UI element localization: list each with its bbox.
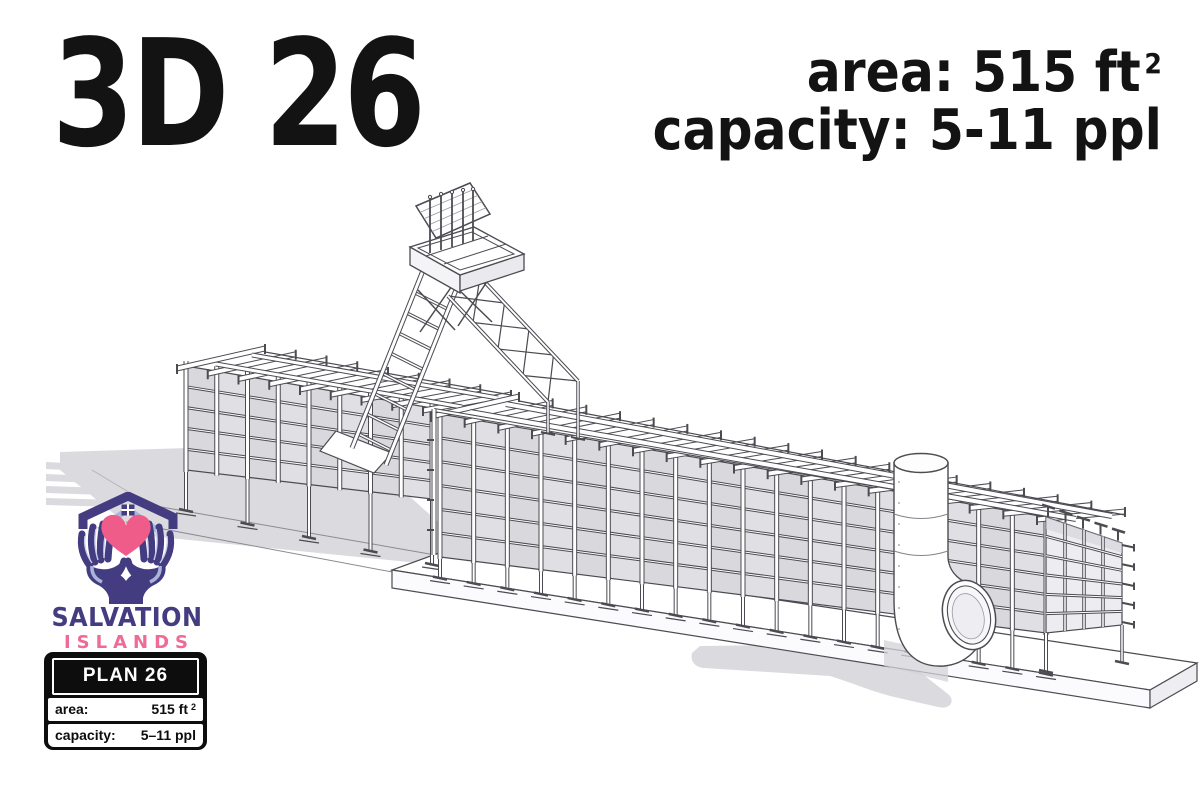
logo-wordmark-line2: ISLANDS bbox=[45, 633, 213, 653]
plan-sheet: 3D 26 area:515 ft2 capacity:5-11 ppl bbox=[0, 0, 1200, 800]
plan-card-title: PLAN 26 bbox=[52, 658, 199, 695]
hatch-platform bbox=[410, 183, 524, 293]
plan-area-label: area: bbox=[55, 701, 88, 717]
plan-capacity-value: 5–11 ppl bbox=[141, 727, 196, 743]
plan-area-value: 515 ft2 bbox=[151, 701, 196, 717]
page-title: 3D 26 bbox=[52, 20, 423, 168]
logo-window-icon bbox=[122, 505, 135, 516]
logo: SALVATION ISLANDS bbox=[45, 492, 207, 653]
plan-capacity-label: capacity: bbox=[55, 727, 116, 743]
spec-area-value: 515 ft bbox=[972, 40, 1141, 105]
header-specs: area:515 ft2 capacity:5-11 ppl bbox=[653, 44, 1162, 160]
spec-area-sup: 2 bbox=[1144, 47, 1162, 80]
plan-card: PLAN 26 area:515 ft2 capacity:5–11 ppl bbox=[44, 652, 207, 750]
logo-palms-icon bbox=[86, 558, 165, 604]
logo-wordmark-line1: SALVATION bbox=[51, 605, 200, 632]
plan-card-capacity-row: capacity:5–11 ppl bbox=[48, 724, 203, 747]
spec-area: area:515 ft2 bbox=[653, 44, 1162, 102]
spec-capacity-label: capacity: bbox=[653, 98, 911, 163]
spec-capacity: capacity:5-11 ppl bbox=[653, 102, 1162, 160]
spec-area-label: area: bbox=[807, 40, 954, 105]
spec-capacity-value: 5-11 ppl bbox=[929, 98, 1162, 163]
logo-hands-house-heart-icon bbox=[46, 492, 206, 605]
plan-card-area-row: area:515 ft2 bbox=[48, 698, 203, 721]
